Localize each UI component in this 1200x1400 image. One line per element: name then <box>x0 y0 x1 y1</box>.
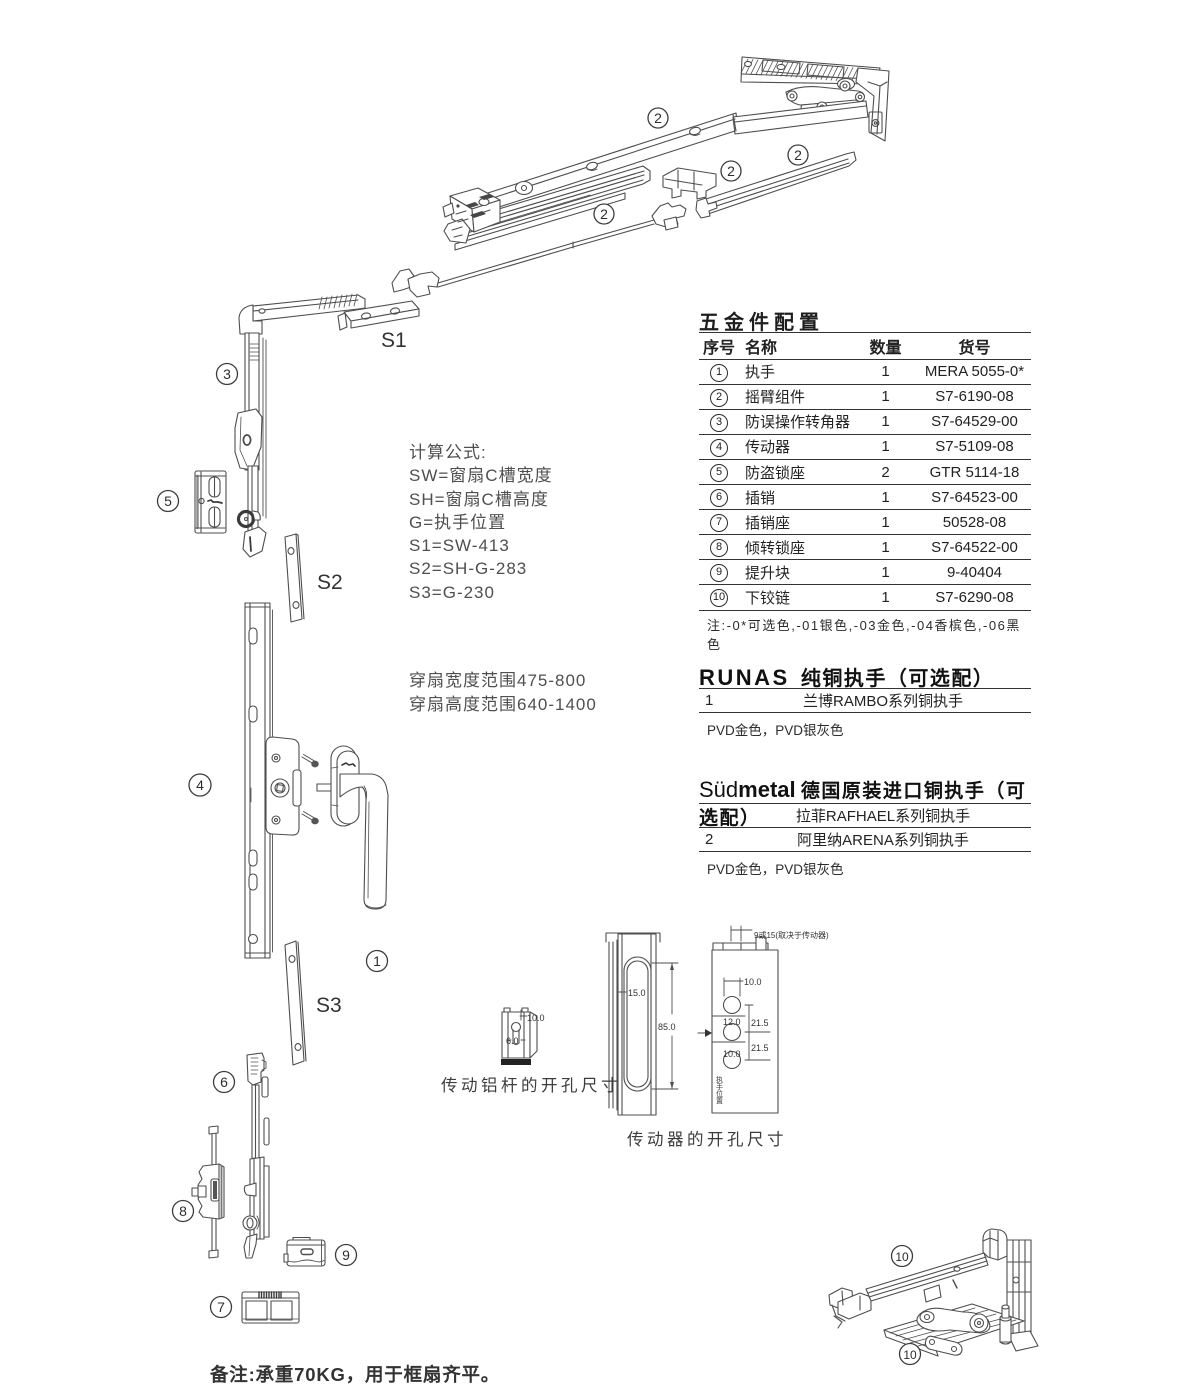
svg-text:5: 5 <box>164 493 172 509</box>
svg-text:6.0: 6.0 <box>506 1036 519 1046</box>
svg-text:15.0: 15.0 <box>628 988 646 998</box>
svg-text:7: 7 <box>217 1299 225 1315</box>
svg-text:10: 10 <box>895 1250 909 1264</box>
svg-text:2: 2 <box>794 147 802 163</box>
svg-text:6: 6 <box>220 1074 228 1090</box>
svg-text:2: 2 <box>727 163 735 179</box>
svg-text:执手位置: 执手位置 <box>716 1075 724 1104</box>
svg-text:3: 3 <box>223 366 231 382</box>
svg-text:9或15(取决于传动器): 9或15(取决于传动器) <box>754 930 829 940</box>
svg-text:21.5: 21.5 <box>751 1018 769 1028</box>
svg-text:2: 2 <box>600 206 608 222</box>
svg-text:9: 9 <box>342 1247 350 1263</box>
svg-text:10.0: 10.0 <box>744 977 762 987</box>
svg-text:12.0: 12.0 <box>723 1017 741 1027</box>
svg-text:21.5: 21.5 <box>751 1043 769 1053</box>
svg-text:85.0: 85.0 <box>658 1022 676 1032</box>
svg-text:10: 10 <box>903 1348 917 1362</box>
svg-text:1: 1 <box>373 953 381 969</box>
svg-text:10.0: 10.0 <box>723 1049 741 1059</box>
svg-text:10.0: 10.0 <box>527 1013 545 1023</box>
svg-text:8: 8 <box>179 1203 187 1219</box>
svg-text:2: 2 <box>654 110 662 126</box>
svg-text:4: 4 <box>196 777 204 793</box>
